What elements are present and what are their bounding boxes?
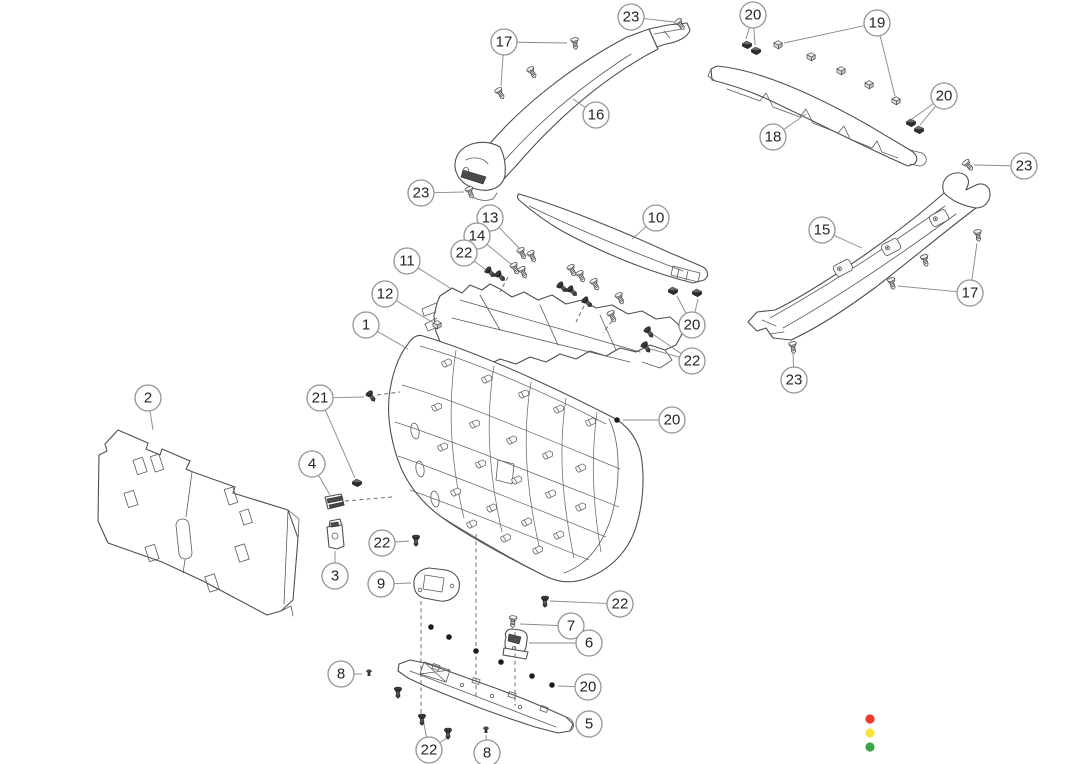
- leader-line: [418, 268, 450, 288]
- callout-number: 17: [496, 34, 513, 51]
- callout-23[interactable]: 23: [1011, 153, 1037, 179]
- callout-number: 22: [374, 535, 391, 552]
- callout-12[interactable]: 12: [372, 281, 398, 307]
- callout-1[interactable]: 1: [353, 312, 379, 338]
- callout-20[interactable]: 20: [740, 2, 766, 28]
- callout-number: 20: [745, 7, 762, 24]
- part-9-bracket-plate: [414, 568, 460, 601]
- clip-icon: [751, 47, 760, 55]
- callout-number: 17: [962, 285, 979, 302]
- callout-number: 22: [421, 742, 438, 759]
- part-18-header-strip: [708, 66, 926, 166]
- leader-line: [475, 261, 486, 270]
- status-dot-green: [865, 742, 874, 751]
- screw-light-icon: [973, 229, 982, 242]
- status-dots-layer: [865, 714, 874, 751]
- callout-8[interactable]: 8: [328, 661, 354, 687]
- block-icon: [774, 41, 782, 49]
- callout-number: 23: [623, 9, 640, 26]
- part-1-main-trim-panel: [389, 335, 643, 581]
- callout-4[interactable]: 4: [299, 451, 325, 477]
- screw-light-icon: [788, 341, 797, 354]
- part-4-socket-clip: [325, 494, 344, 509]
- callout-number: 2: [144, 390, 152, 407]
- screw-dark-icon: [394, 687, 401, 698]
- leader-line: [558, 686, 575, 687]
- callout-number: 8: [337, 666, 345, 683]
- leader-line: [517, 42, 567, 43]
- callout-number: 7: [567, 618, 575, 635]
- leader-line: [974, 165, 1011, 166]
- callout-22[interactable]: 22: [369, 530, 395, 556]
- leader-line: [395, 541, 409, 542]
- part-15-right-pillar-trim: [748, 173, 990, 340]
- leader-line: [677, 296, 686, 313]
- screw-light-icon: [566, 264, 578, 278]
- leader-line: [880, 36, 895, 96]
- leader-line: [319, 476, 330, 495]
- callout-22[interactable]: 22: [451, 240, 477, 266]
- leader-line: [920, 106, 935, 125]
- callout-number: 20: [684, 317, 701, 334]
- callout-number: 19: [869, 15, 886, 32]
- callout-20[interactable]: 20: [931, 83, 957, 109]
- leader-line: [499, 228, 520, 249]
- leader-line: [834, 236, 862, 248]
- leader-line: [434, 192, 464, 193]
- callout-number: 20: [664, 412, 681, 429]
- callout-17[interactable]: 17: [491, 29, 517, 55]
- callout-19[interactable]: 19: [864, 10, 890, 36]
- callout-3[interactable]: 3: [322, 563, 348, 589]
- callout-number: 9: [377, 576, 385, 593]
- callout-number: 13: [482, 210, 499, 227]
- screw-light-icon: [570, 37, 579, 50]
- callout-number: 23: [786, 372, 803, 389]
- callout-20[interactable]: 20: [679, 312, 705, 338]
- block-icon: [865, 81, 873, 89]
- callout-number: 21: [312, 390, 329, 407]
- callout-number: 1: [362, 317, 370, 334]
- clip-icon: [668, 287, 677, 295]
- callout-number: 15: [814, 222, 831, 239]
- dot-icon: [498, 659, 504, 665]
- leader-line: [325, 410, 355, 478]
- clip-icon: [692, 289, 701, 297]
- clip-icon: [906, 119, 915, 127]
- leader-line: [501, 55, 503, 86]
- leader-line: [550, 601, 607, 603]
- callout-number: 10: [648, 210, 665, 227]
- leader-line: [912, 104, 933, 119]
- dot-icon: [549, 682, 555, 688]
- leader-line: [333, 397, 364, 398]
- callout-22[interactable]: 22: [416, 737, 442, 763]
- leader-line: [793, 353, 794, 367]
- callout-number: 22: [456, 245, 473, 262]
- status-dot-red: [865, 714, 874, 723]
- callout-number: 20: [936, 88, 953, 105]
- exploded-parts-diagram: 2317162320191820231013142211121151723202…: [0, 0, 1080, 764]
- leader-line: [695, 299, 698, 312]
- parts-layer: [98, 23, 990, 733]
- callout-number: 20: [580, 679, 597, 696]
- screw-light-icon: [494, 86, 507, 100]
- screw-light-icon: [517, 266, 529, 280]
- callout-20[interactable]: 20: [659, 407, 685, 433]
- callouts-layer: 2317162320191820231013142211121151723202…: [135, 2, 1037, 764]
- callout-number: 16: [588, 107, 605, 124]
- callout-11[interactable]: 11: [394, 248, 420, 274]
- callout-number: 8: [483, 745, 491, 762]
- leader-line: [754, 28, 755, 45]
- leader-line: [784, 26, 864, 43]
- screw-light-icon: [887, 277, 898, 291]
- callout-23[interactable]: 23: [408, 180, 434, 206]
- leader-line: [424, 724, 426, 737]
- callout-22[interactable]: 22: [607, 591, 633, 617]
- leader-line: [440, 738, 447, 743]
- callout-number: 3: [331, 568, 339, 585]
- dot-icon: [446, 634, 452, 640]
- callout-9[interactable]: 9: [368, 571, 394, 597]
- screw-dark-icon: [412, 535, 419, 546]
- screw-dark-icon: [418, 714, 425, 725]
- callout-number: 4: [308, 456, 316, 473]
- callout-21[interactable]: 21: [307, 385, 333, 411]
- screw-dark-icon: [484, 266, 497, 279]
- part-6-latch: [503, 629, 528, 659]
- screw-light-icon: [509, 615, 518, 627]
- clip-icon: [914, 126, 923, 134]
- screw-dark-icon: [444, 728, 451, 739]
- callout-17[interactable]: 17: [957, 280, 983, 306]
- block-icon: [837, 67, 845, 75]
- leader-line: [746, 28, 749, 39]
- clip-icon: [352, 479, 361, 487]
- callout-10[interactable]: 10: [643, 205, 669, 231]
- screw-dark-icon: [566, 285, 579, 298]
- callout-23[interactable]: 23: [618, 4, 644, 30]
- screw-light-icon: [962, 158, 976, 172]
- clip-icon: [742, 41, 751, 49]
- screw-dark-icon: [541, 596, 548, 607]
- block-icon: [892, 97, 900, 105]
- leader-line: [644, 19, 674, 22]
- leader-line: [972, 243, 977, 280]
- part-3-clip-bracket: [327, 519, 344, 549]
- block-icon: [807, 53, 815, 61]
- pin-icon: [483, 727, 488, 733]
- screw-light-icon: [526, 250, 538, 264]
- leader-line: [632, 227, 646, 239]
- callout-8[interactable]: 8: [474, 740, 500, 764]
- callout-5[interactable]: 5: [576, 711, 602, 737]
- callout-16[interactable]: 16: [583, 102, 609, 128]
- part-5-lower-sill-strip: [398, 660, 573, 733]
- dot-icon: [428, 624, 434, 630]
- part-10-curved-panel: [518, 194, 708, 283]
- callout-number: 23: [1016, 158, 1033, 175]
- leader-line: [520, 624, 558, 625]
- leader-line: [784, 114, 806, 129]
- screw-light-icon: [526, 65, 539, 79]
- callout-number: 23: [413, 185, 430, 202]
- callout-6[interactable]: 6: [576, 630, 602, 656]
- screw-light-icon: [614, 292, 626, 306]
- callout-18[interactable]: 18: [760, 124, 786, 150]
- screw-dark-icon: [365, 390, 378, 404]
- callout-number: 18: [765, 129, 782, 146]
- parts-diagram-page: 2317162320191820231013142211121151723202…: [0, 0, 1080, 764]
- callout-number: 5: [585, 716, 593, 733]
- callout-15[interactable]: 15: [809, 217, 835, 243]
- dot-icon: [614, 417, 620, 423]
- dot-icon: [473, 648, 479, 654]
- leader-line: [898, 286, 957, 292]
- status-dot-yellow: [865, 728, 874, 737]
- callout-number: 12: [377, 286, 394, 303]
- leader-line: [397, 301, 432, 322]
- callout-20[interactable]: 20: [575, 674, 601, 700]
- callout-2[interactable]: 2: [135, 385, 161, 411]
- callout-number: 11: [399, 253, 415, 270]
- screw-light-icon: [920, 254, 931, 268]
- alignment-dash-line: [345, 497, 392, 501]
- part-16-upper-left-trim: [455, 23, 690, 200]
- leader-line: [378, 332, 408, 349]
- screw-light-icon: [575, 270, 587, 284]
- screw-light-icon: [589, 278, 601, 292]
- callout-number: 6: [585, 635, 593, 652]
- callout-23[interactable]: 23: [781, 367, 807, 393]
- dot-icon: [529, 673, 535, 679]
- leader-line: [487, 245, 512, 265]
- screw-dark-icon: [556, 281, 569, 294]
- part-2-insulation-panel: [98, 430, 299, 616]
- callout-22[interactable]: 22: [679, 348, 705, 374]
- leader-line: [150, 411, 153, 430]
- callout-number: 22: [684, 353, 701, 370]
- leader-line: [394, 583, 411, 584]
- callout-number: 22: [612, 596, 629, 613]
- screw-dark-icon: [494, 270, 507, 283]
- pin-icon: [366, 670, 371, 676]
